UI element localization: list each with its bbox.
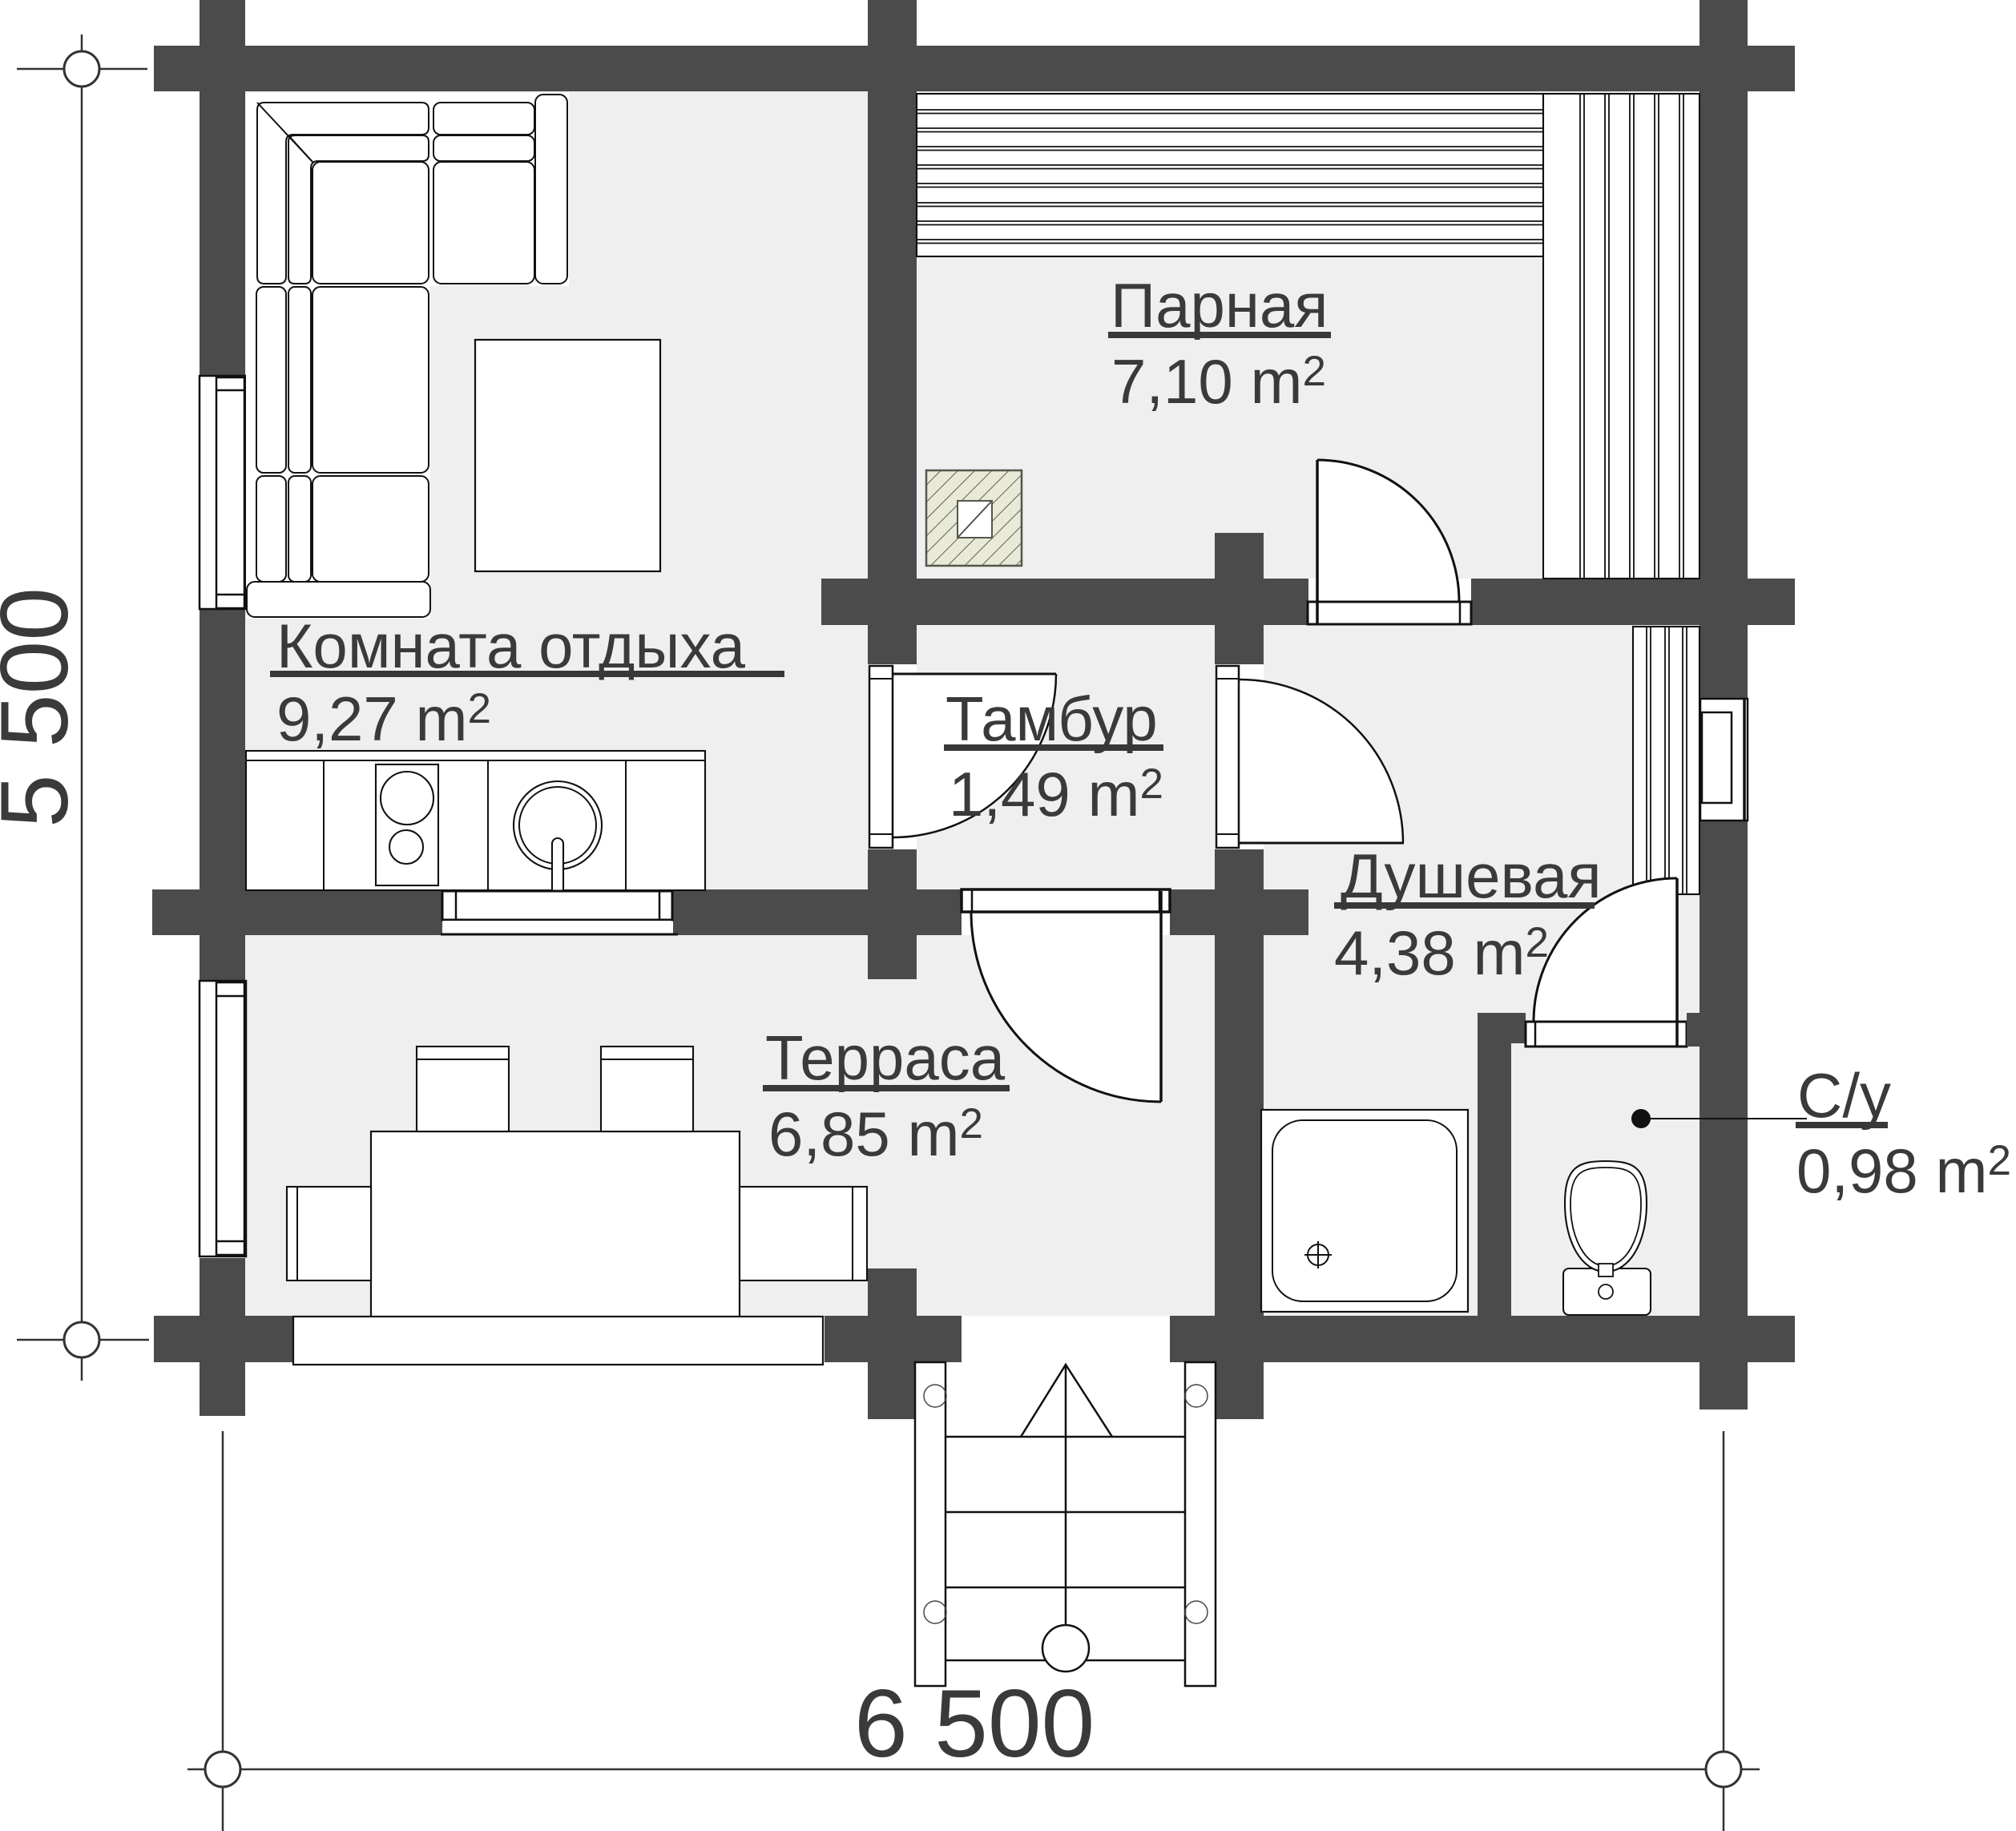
svg-text:1,49 m2: 1,49 m2 xyxy=(949,759,1163,829)
svg-text:Парная: Парная xyxy=(1111,270,1329,341)
svg-text:9,27 m2: 9,27 m2 xyxy=(276,684,491,754)
svg-text:5 500: 5 500 xyxy=(0,587,88,828)
svg-text:4,38 m2: 4,38 m2 xyxy=(1334,918,1549,988)
svg-text:Тамбур: Тамбур xyxy=(946,684,1158,754)
svg-text:Комната отдыха: Комната отдыха xyxy=(276,611,746,681)
svg-text:С/у: С/у xyxy=(1797,1060,1891,1131)
svg-text:Терраса: Терраса xyxy=(765,1022,1006,1093)
svg-text:0,98 m2: 0,98 m2 xyxy=(1796,1135,2011,1206)
svg-text:7,10 m2: 7,10 m2 xyxy=(1111,346,1326,417)
svg-text:6,85 m2: 6,85 m2 xyxy=(768,1099,983,1169)
svg-text:Душевая: Душевая xyxy=(1341,841,1602,911)
svg-text:6 500: 6 500 xyxy=(854,1670,1095,1777)
